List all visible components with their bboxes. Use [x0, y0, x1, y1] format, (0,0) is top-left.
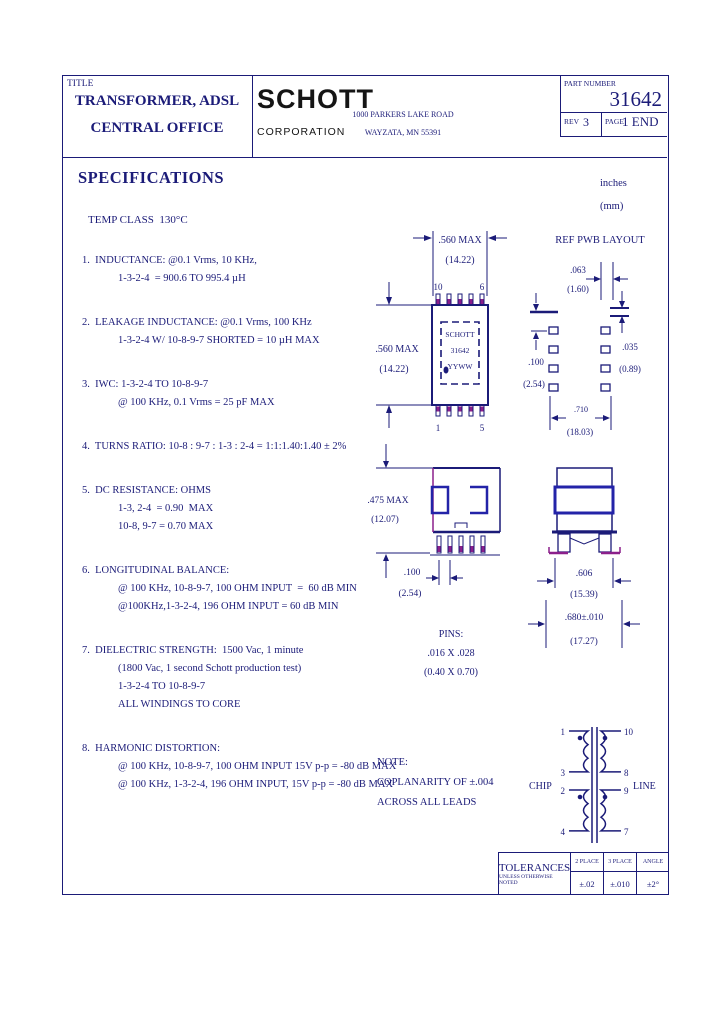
pwb-pitch-mm: (2.54)	[523, 379, 545, 389]
rev-label: REV	[564, 117, 579, 126]
tolerance-block: TOLERANCES UNLESS OTHERWISE NOTED 2 PLAC…	[498, 852, 668, 894]
titleblock-divider-1	[252, 75, 253, 157]
package-end-view-drawing: .606 (15.39) .680±.010 (17.27)	[520, 440, 673, 655]
tol-col3-label: ANGLE	[637, 853, 669, 872]
pin-label-10: 10	[434, 282, 444, 292]
pwb-span-mm: (18.03)	[567, 427, 593, 437]
pin-label-6: 6	[480, 282, 485, 292]
end-dim-lead: .680±.010	[565, 613, 604, 623]
specifications-section: SPECIFICATIONS TEMP CLASS 130°C 1. INDUC…	[78, 168, 418, 820]
note-line3: ACROSS ALL LEADS	[377, 793, 494, 813]
tol-col1-value: ±.02	[571, 872, 604, 895]
marking-line3: YYWW	[448, 362, 474, 371]
side-dim-h-mm: (12.07)	[371, 514, 399, 525]
end-view-winding	[555, 487, 613, 513]
tol-col1-label: 2 PLACE	[571, 853, 604, 872]
sch-pin-3: 3	[561, 768, 566, 778]
sch-pin-1: 1	[561, 727, 566, 737]
pwb-pad-h-mm: (0.89)	[619, 364, 641, 374]
tol-col2-label: 3 PLACE	[604, 853, 637, 872]
package-top-view-drawing: .560 MAX (14.22) .560 MAX (14.22) 10 6 1…	[368, 225, 535, 440]
spec-item-8: 8. HARMONIC DISTORTION: @ 100 KHz, 10-8-…	[82, 740, 418, 794]
dim-width-mm: (14.22)	[445, 255, 474, 266]
tol-col3-value: ±2°	[637, 872, 669, 895]
sch-pin-10: 10	[624, 727, 634, 737]
pwb-heading: REF PWB LAYOUT	[555, 235, 645, 246]
end-dim-body: .606	[576, 569, 593, 579]
sch-pin-9: 9	[624, 786, 629, 796]
pins-note-size-mm: (0.40 X 0.70)	[405, 663, 497, 682]
ref-pwb-layout-drawing: REF PWB LAYOUT .063 (1.60) .035 (0.	[520, 228, 672, 445]
pin-label-5: 5	[480, 423, 485, 433]
spec-item-7: 7. DIELECTRIC STRENGTH: 1500 Vac, 1 minu…	[82, 642, 418, 714]
sch-pin-2: 2	[561, 786, 566, 796]
company-address-1: 1000 PARKERS LAKE ROAD	[334, 106, 472, 124]
pwb-pitch: .100	[528, 357, 544, 367]
specifications-heading: SPECIFICATIONS	[78, 168, 418, 188]
pin-label-1: 1	[436, 423, 441, 433]
partbox-divider-h1	[560, 112, 667, 113]
company-logo-sub: CORPORATION	[257, 126, 345, 138]
drawing-title-line2: CENTRAL OFFICE	[62, 120, 252, 137]
side-dim-pitch-mm: (2.54)	[399, 588, 422, 599]
schematic-chip-label: CHIP	[529, 781, 552, 792]
sch-pin-8: 8	[624, 768, 629, 778]
sch-pin-7: 7	[624, 827, 629, 837]
schematic-line-label: LINE	[633, 781, 656, 792]
schematic-core	[592, 727, 597, 843]
end-dim-body-mm: (15.39)	[570, 589, 598, 600]
end-dim-lead-mm: (17.27)	[570, 636, 598, 647]
part-number: 31642	[558, 87, 662, 112]
dim-height-mm: (14.22)	[379, 364, 408, 375]
note-line2: COPLANARITY OF ±.004	[377, 773, 494, 793]
side-dim-h: .475 MAX	[368, 496, 409, 506]
schematic-windings	[569, 731, 621, 831]
marking-line1: SCHOTT	[445, 330, 475, 339]
sch-pin-4: 4	[561, 827, 566, 837]
side-view-pin-pads	[438, 546, 485, 552]
transformer-schematic: 1 3 2 4 10 8 9 7 CHIP LINE	[524, 712, 670, 850]
partbox-divider-h2	[560, 136, 667, 137]
dim-height: .560 MAX	[375, 344, 419, 355]
side-view-windows	[432, 487, 487, 513]
rev-value: 3	[583, 115, 589, 130]
partbox-divider-v	[601, 112, 602, 136]
title-label: TITLE	[67, 79, 93, 89]
marking-line2: 31642	[451, 346, 470, 355]
pwb-span: .710	[574, 405, 588, 414]
tolerance-heading: TOLERANCES	[499, 862, 570, 874]
pwb-pad-h: .035	[622, 342, 638, 352]
drawing-sheet: TITLE TRANSFORMER, ADSL CENTRAL OFFICE S…	[0, 0, 720, 1012]
drawing-title-line1: TRANSFORMER, ADSL	[62, 93, 252, 110]
page-value: 1 END	[622, 114, 658, 130]
pins-note-label: PINS:	[405, 625, 497, 644]
note-label: NOTE:	[377, 753, 494, 773]
pwb-pad-w-mm: (1.60)	[567, 284, 589, 294]
side-dim-pitch: .100	[404, 568, 421, 578]
dim-width: .560 MAX	[438, 235, 482, 246]
tolerance-subheading: UNLESS OTHERWISE NOTED	[499, 874, 570, 886]
pins-note-size: .016 X .028	[405, 644, 497, 663]
pwb-pad-w: .063	[570, 265, 586, 275]
tolerance-heading-cell: TOLERANCES UNLESS OTHERWISE NOTED	[499, 853, 571, 895]
titleblock-bottom-line	[62, 157, 667, 158]
company-address-2: WAYZATA, MN 55391	[334, 124, 472, 142]
units-mm: (mm)	[600, 195, 627, 218]
units-inches: inches	[600, 172, 627, 195]
tol-col2-value: ±.010	[604, 872, 637, 895]
